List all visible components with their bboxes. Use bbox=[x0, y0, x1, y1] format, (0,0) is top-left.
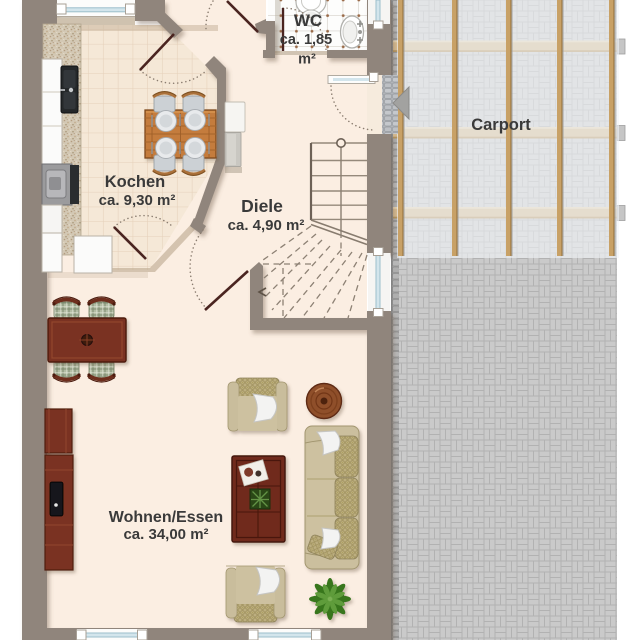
svg-text:Carport: Carport bbox=[471, 116, 531, 134]
svg-text:Kochen: Kochen bbox=[105, 173, 166, 191]
svg-text:Diele: Diele bbox=[241, 196, 283, 216]
svg-text:WC: WC bbox=[294, 11, 322, 30]
svg-text:ca. 4,90 m²: ca. 4,90 m² bbox=[228, 217, 305, 234]
svg-text:ca. 9,30 m²: ca. 9,30 m² bbox=[99, 192, 176, 209]
svg-text:m²: m² bbox=[298, 52, 316, 68]
svg-text:ca. 34,00 m²: ca. 34,00 m² bbox=[123, 526, 208, 543]
svg-text:Wohnen/Essen: Wohnen/Essen bbox=[109, 509, 223, 526]
svg-text:ca. 1,85: ca. 1,85 bbox=[280, 32, 332, 48]
